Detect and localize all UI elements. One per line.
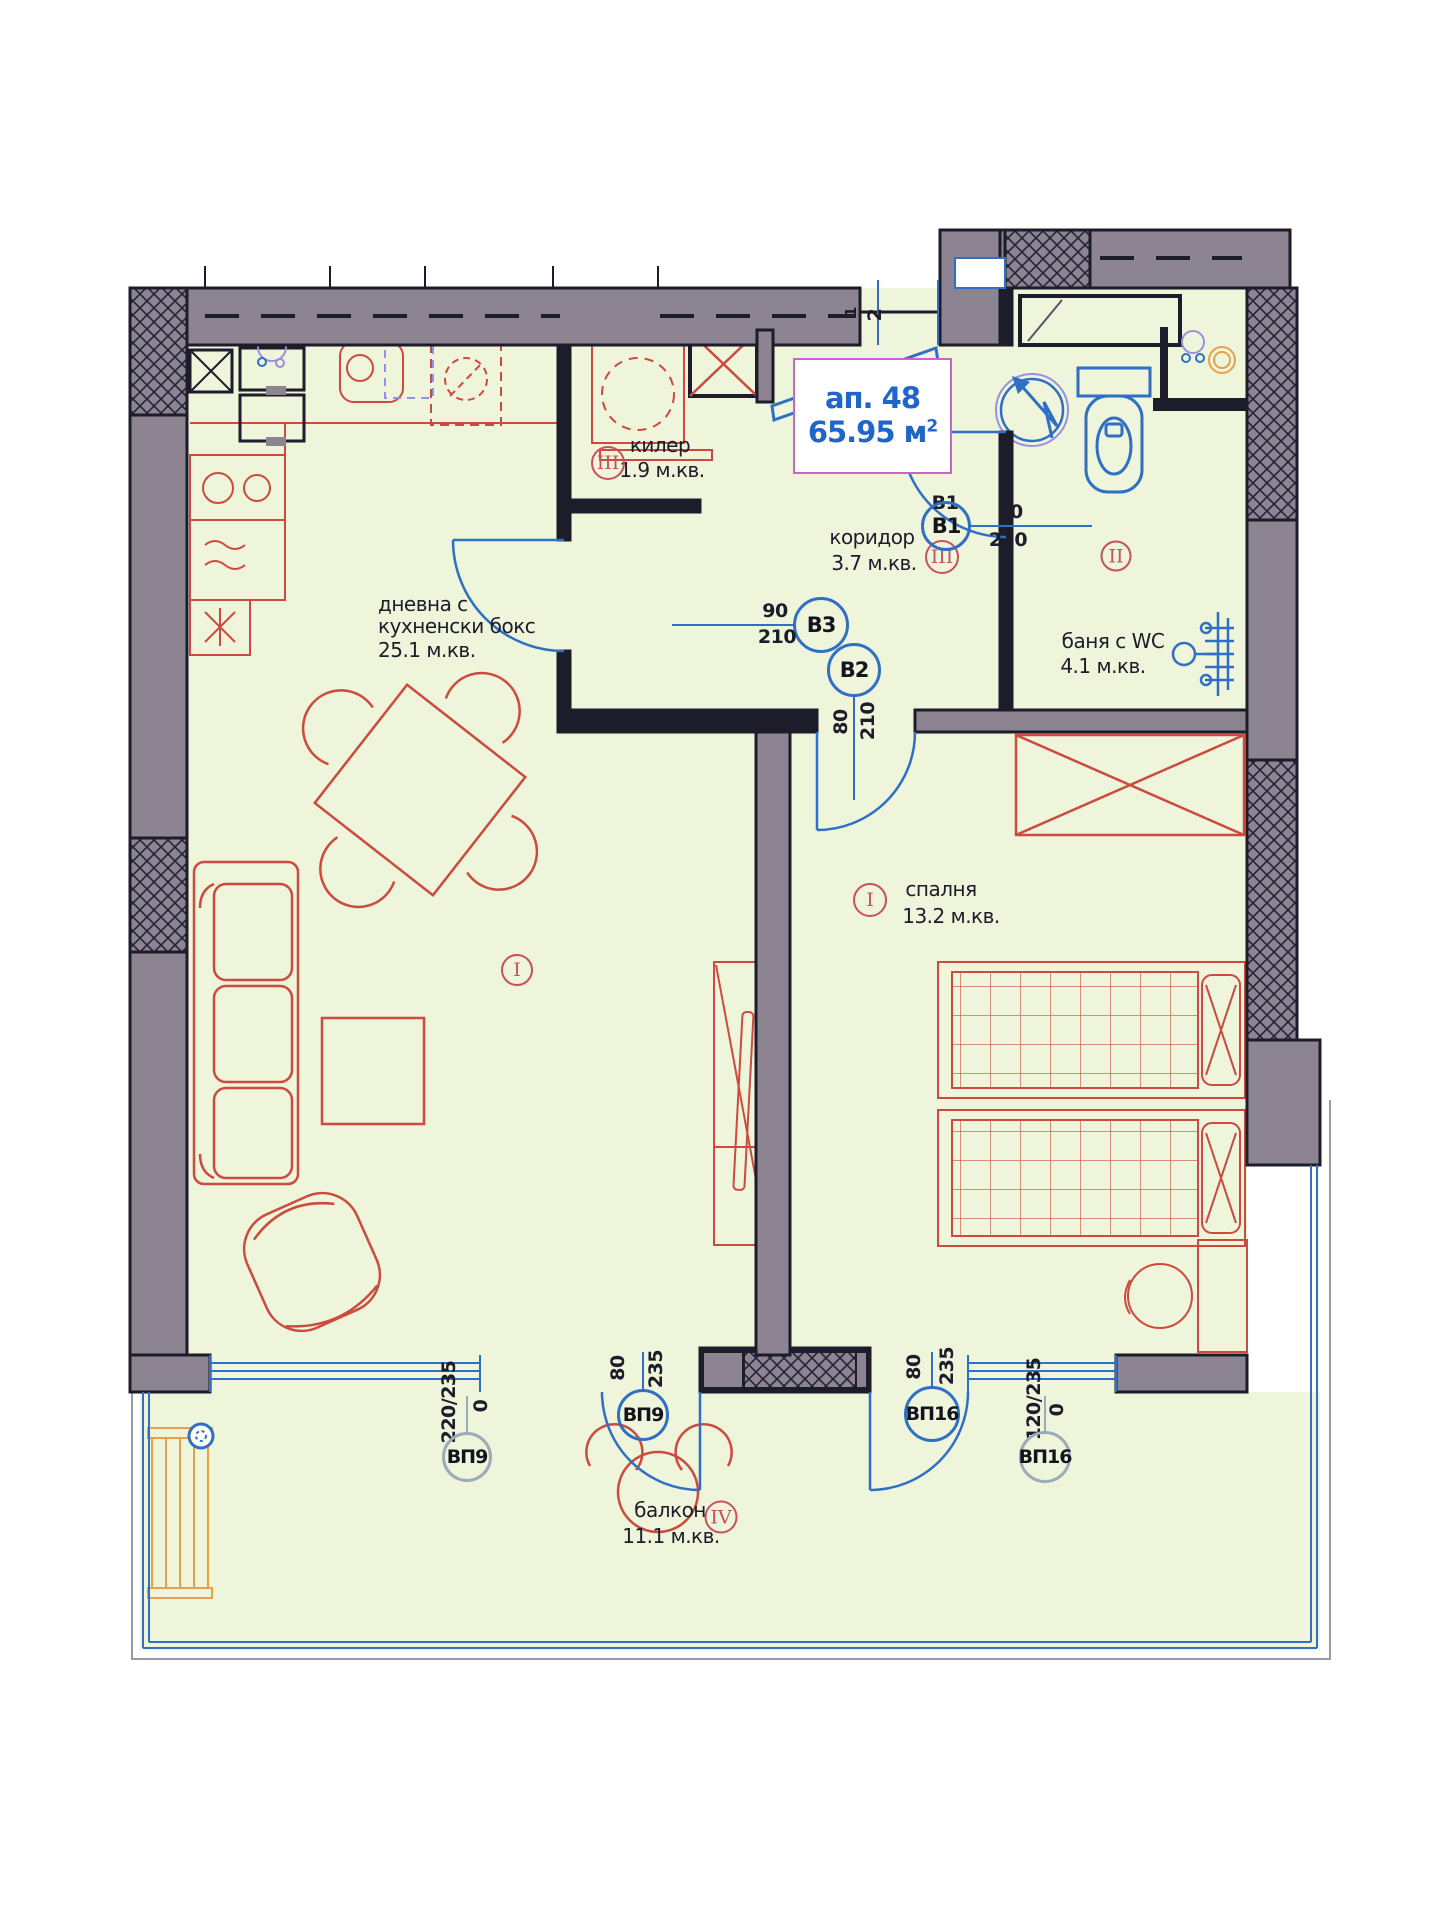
bedroom-area: 13.2 м.кв. <box>902 904 1000 928</box>
pantry-area: 1.9 м.кв. <box>619 458 704 482</box>
bedroom-marker: I <box>853 883 887 917</box>
door-b3-circle: В3 <box>793 597 849 653</box>
vp9-door-circle: ВП9 <box>617 1389 669 1441</box>
vp9-window-circle: ВП9 <box>442 1432 492 1482</box>
vp9-door-width: 80 <box>607 1355 629 1380</box>
apartment-area: 65.95 м2 <box>808 417 937 449</box>
vp16-door-circle: ВП16 <box>904 1386 960 1442</box>
pantry-label: килер <box>630 433 690 457</box>
bedroom-label: спалня <box>905 877 976 901</box>
living-room-area: 25.1 м.кв. <box>378 638 476 662</box>
door-b2-height: 210 <box>857 702 879 740</box>
bathroom-marker: II <box>1101 541 1132 572</box>
door-b2-circle: В2 <box>827 643 881 697</box>
bath-shelf <box>1020 296 1180 345</box>
living-room-marker: I <box>501 954 533 986</box>
bed-2 <box>938 1110 1245 1246</box>
vp16-window-dim: 120/235 <box>1023 1358 1045 1441</box>
entry-dim-2: 2 <box>864 309 886 322</box>
vp16-window-zero: 0 <box>1046 1404 1068 1417</box>
balcony-light-icon <box>189 1424 213 1448</box>
balcony-area: 11.1 м.кв. <box>622 1524 720 1548</box>
bathroom-area: 4.1 м.кв. <box>1060 654 1145 678</box>
balcony-label: балкон <box>634 1498 706 1522</box>
door-b2-width: 80 <box>830 709 852 734</box>
vp16-door-height: 235 <box>936 1347 958 1385</box>
pantry-marker: III <box>591 446 625 480</box>
living-room-label-line2: кухненски бокс <box>378 614 535 638</box>
entry-dim-1: 1 <box>842 307 860 317</box>
floorplan-drawing <box>0 0 1434 1920</box>
vp9-window-dim: 220/235 <box>438 1361 460 1444</box>
apartment-number: ап. 48 <box>825 383 920 415</box>
title-box: ап. 48 65.95 м2 <box>793 358 952 474</box>
door-b3-height: 210 <box>758 626 796 648</box>
floorplan-page: ап. 48 65.95 м2 дневна с кухненски бокс … <box>0 0 1434 1920</box>
vp16-window-circle: ВП16 <box>1019 1431 1071 1483</box>
bathroom-label: баня с WC <box>1062 629 1165 653</box>
door-b3-width: 90 <box>762 600 787 622</box>
bed-1 <box>938 962 1245 1098</box>
door-b1-width: 70 <box>997 501 1022 523</box>
vp16-door-width: 80 <box>903 1354 925 1379</box>
corridor-label: коридор <box>829 525 914 549</box>
vp9-door-height: 235 <box>645 1350 667 1388</box>
vp9-window-zero: 0 <box>470 1400 492 1413</box>
corridor-area: 3.7 м.кв. <box>831 551 916 575</box>
living-room-label-line1: дневна с <box>378 592 468 616</box>
balcony-marker: IV <box>705 1501 738 1534</box>
door-b1-circle: В1 <box>921 501 971 551</box>
door-b1-height: 210 <box>989 529 1027 551</box>
